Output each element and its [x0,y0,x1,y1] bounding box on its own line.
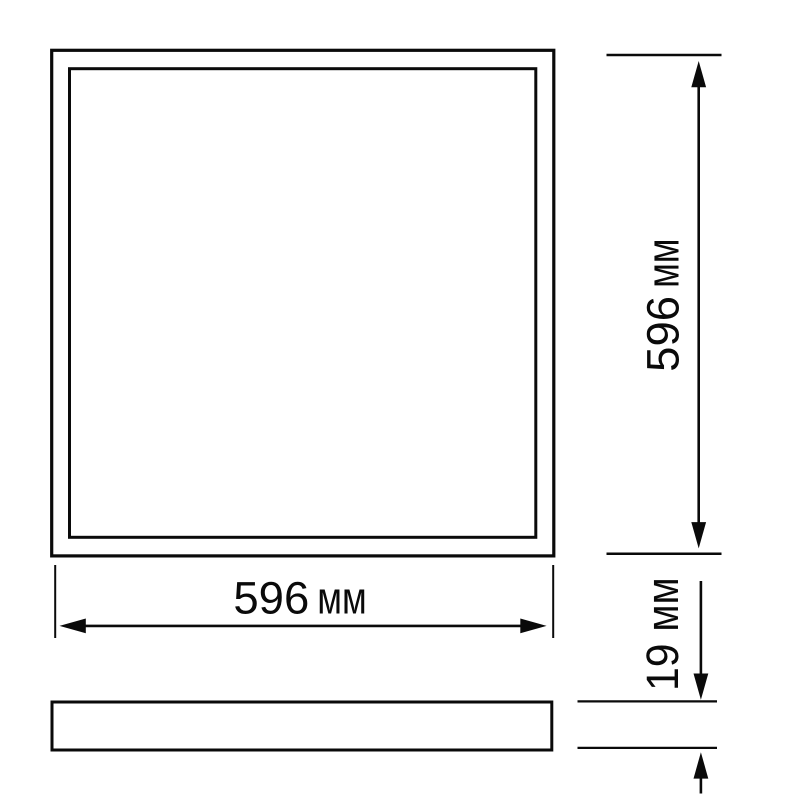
svg-text:19: 19 [638,643,688,691]
svg-text:596: 596 [233,572,309,623]
svg-text:мм: мм [637,577,688,631]
svg-text:мм: мм [637,239,688,288]
svg-text:596: 596 [638,296,689,372]
svg-text:мм: мм [317,572,366,623]
